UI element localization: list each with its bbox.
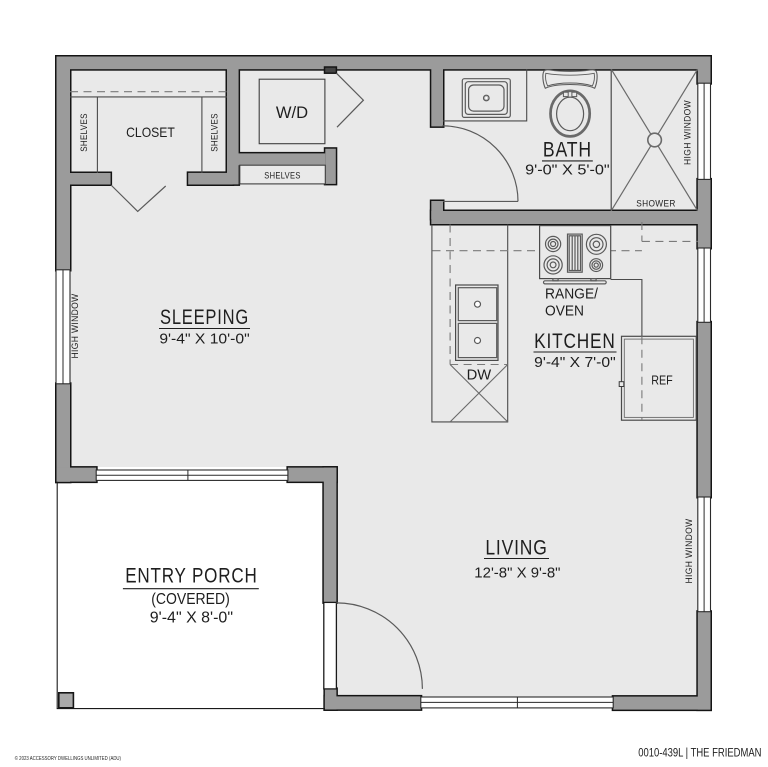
svg-text:BATH: BATH: [543, 138, 592, 161]
svg-text:ENTRY PORCH: ENTRY PORCH: [125, 565, 257, 588]
svg-text:12'-8" X 9'-8": 12'-8" X 9'-8": [474, 564, 560, 581]
svg-text:SHOWER: SHOWER: [636, 198, 676, 209]
svg-text:9'-4" X 10'-0": 9'-4" X 10'-0": [159, 331, 249, 348]
svg-text:OVEN: OVEN: [545, 304, 584, 320]
svg-text:9'-4" X 8'-0": 9'-4" X 8'-0": [150, 609, 233, 626]
svg-text:(COVERED): (COVERED): [151, 591, 230, 608]
svg-text:CLOSET: CLOSET: [126, 124, 175, 140]
svg-text:0010-439L | THE FRIEDMAN: 0010-439L | THE FRIEDMAN: [638, 748, 761, 760]
svg-text:9'-4" X 7'-0": 9'-4" X 7'-0": [534, 354, 616, 371]
svg-text:9'-0" X 5'-0": 9'-0" X 5'-0": [525, 161, 610, 178]
svg-text:SLEEPING: SLEEPING: [160, 306, 249, 329]
svg-text:HIGH WINDOW: HIGH WINDOW: [684, 519, 695, 584]
svg-text:HIGH WINDOW: HIGH WINDOW: [70, 294, 81, 359]
svg-text:SHELVES: SHELVES: [79, 113, 90, 152]
svg-text:HIGH WINDOW: HIGH WINDOW: [683, 100, 694, 165]
svg-text:© 2023 ACCESSORY DWELLINGS UNL: © 2023 ACCESSORY DWELLINGS UNLIMITED (AD…: [15, 755, 121, 762]
svg-text:SHELVES: SHELVES: [210, 113, 221, 152]
svg-text:RANGE/: RANGE/: [545, 287, 599, 303]
svg-text:KITCHEN: KITCHEN: [534, 330, 616, 353]
svg-text:LIVING: LIVING: [485, 537, 547, 560]
svg-text:REF: REF: [651, 373, 673, 388]
svg-text:SHELVES: SHELVES: [264, 171, 301, 182]
svg-text:DW: DW: [467, 367, 492, 383]
svg-text:W/D: W/D: [276, 103, 308, 122]
